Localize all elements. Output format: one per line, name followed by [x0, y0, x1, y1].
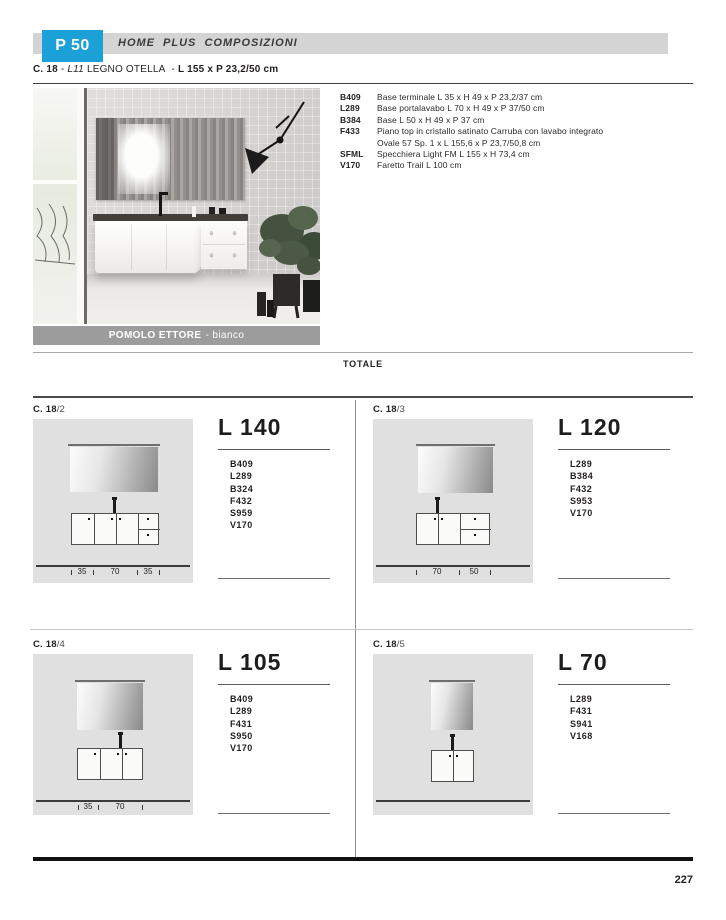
- composition-photo: [33, 88, 320, 324]
- ground-line: [376, 800, 530, 802]
- variant-diagram: 70 50: [373, 419, 533, 583]
- variant-bottom-rule: [558, 813, 670, 814]
- variant-title-rule: [218, 684, 330, 685]
- variant-codes: B409 L289 F431 S950 V170: [230, 693, 253, 754]
- knob-icon: [474, 518, 476, 520]
- variant-codes: B409 L289 B324 F432 S959 V170: [230, 458, 253, 532]
- variant-code: F431: [230, 718, 253, 730]
- dim-tick: [71, 570, 72, 575]
- dim-tick: [142, 805, 143, 810]
- knob-icon: [441, 518, 443, 520]
- cabinet-divider: [453, 751, 454, 781]
- component-code: B409: [340, 92, 377, 103]
- variant-code: L289: [570, 693, 593, 705]
- component-code: L289: [340, 103, 377, 114]
- component-desc: Base terminale L 35 x H 49 x P 23,2/37 c…: [377, 92, 722, 103]
- knob-icon: [147, 518, 149, 520]
- component-desc: Ovale 57 Sp. 1 x L 155,6 x P 23,7/50,8 c…: [377, 138, 722, 149]
- component-desc: Piano top in cristallo satinato Carruba …: [377, 126, 722, 137]
- component-row: V170 Faretto Trail L 100 cm: [340, 160, 722, 171]
- variant-ref: C. 18/3: [373, 404, 405, 415]
- heading-rule: [33, 83, 693, 84]
- variant-title-rule: [558, 684, 670, 685]
- mirror-light-icon: [68, 444, 160, 446]
- variant-ref-suffix: /5: [397, 639, 405, 650]
- wall-lamp-icon: [257, 102, 304, 155]
- dim-label: 35: [84, 802, 93, 811]
- faucet-icon: [451, 737, 454, 750]
- mirror-icon: [431, 683, 473, 730]
- photo-caption: POMOLO ETTORE - bianco: [33, 326, 320, 345]
- component-row: SFML Specchiera Light FM L 155 x H 73,4 …: [340, 149, 722, 160]
- knob-icon: [94, 753, 96, 755]
- collection-title: HOME PLUS COMPOSIZIONI: [118, 37, 298, 49]
- lamp-joint-icon: [277, 137, 284, 144]
- variant-code: F432: [230, 495, 253, 507]
- component-row-continuation: Ovale 57 Sp. 1 x L 155,6 x P 23,7/50,8 c…: [340, 138, 722, 149]
- variant-code: B409: [230, 693, 253, 705]
- dim-label: 50: [470, 567, 479, 576]
- variant-ref-code: C. 18: [33, 639, 57, 650]
- variant-code: B324: [230, 483, 253, 495]
- variant-ref: C. 18/5: [373, 639, 405, 650]
- variant-title-rule: [218, 449, 330, 450]
- variant-code: V168: [570, 730, 593, 742]
- dim-tick: [137, 570, 138, 575]
- variant-diagram: 35 70 35: [33, 419, 193, 583]
- finish-code: L11: [67, 64, 84, 75]
- variant-title: L 105: [218, 649, 281, 676]
- variant-code: B409: [230, 458, 253, 470]
- variant-ref: C. 18/2: [33, 404, 65, 415]
- knob-icon: [88, 518, 90, 520]
- finish-name: LEGNO OTELLA: [87, 64, 166, 75]
- cabinet-divider: [460, 529, 491, 530]
- row-divider: [30, 629, 693, 630]
- variant-code: L289: [570, 458, 593, 470]
- knob-icon: [119, 518, 121, 520]
- dash: -: [171, 64, 175, 75]
- caption-finish: - bianco: [206, 330, 245, 341]
- variant-bottom-rule: [218, 578, 330, 579]
- variant-diagram: 35 70: [33, 654, 193, 815]
- component-row: B409 Base terminale L 35 x H 49 x P 23,2…: [340, 92, 722, 103]
- dim-label: 70: [433, 567, 442, 576]
- knob-icon: [125, 753, 127, 755]
- variant-code: S950: [230, 730, 253, 742]
- variant-bottom-rule: [558, 578, 670, 579]
- dim-tick: [459, 570, 460, 575]
- cabinet-icon: [416, 513, 490, 545]
- variant-code: L289: [230, 470, 253, 482]
- plant-icon: [259, 206, 320, 275]
- component-row: F433 Piano top in cristallo satinato Car…: [340, 126, 722, 137]
- component-row: L289 Base portalavabo L 70 x H 49 x P 37…: [340, 103, 722, 114]
- component-code: B384: [340, 115, 377, 126]
- totale-rule-bottom: [33, 396, 693, 398]
- variant-title-rule: [558, 449, 670, 450]
- composition-heading: C. 18 - L11 LEGNO OTELLA - L 155 x P 23,…: [33, 64, 278, 75]
- cabinet-icon: [77, 748, 143, 780]
- mirror-icon: [70, 447, 158, 492]
- variant-title: L 120: [558, 414, 621, 441]
- ground-line: [376, 565, 530, 567]
- knob-icon: [111, 518, 113, 520]
- dim-label: 70: [116, 802, 125, 811]
- cabinet-divider: [122, 749, 123, 779]
- planter-pot-icon: [257, 274, 320, 318]
- variant-diagram: [373, 654, 533, 815]
- page-number: 227: [600, 874, 693, 886]
- knob-icon: [117, 753, 119, 755]
- cabinet-divider: [100, 749, 101, 779]
- variant-title: L 70: [558, 649, 608, 676]
- variant-ref-code: C. 18: [373, 639, 397, 650]
- variant-bottom-rule: [218, 813, 330, 814]
- faucet-icon: [119, 735, 122, 748]
- totale-rule-top: [33, 352, 693, 353]
- catalog-page: P 50 HOME PLUS COMPOSIZIONI C. 18 - L11 …: [0, 0, 726, 920]
- railing-icon: [35, 204, 75, 264]
- dim-tick: [490, 570, 491, 575]
- dim-label: 35: [144, 567, 153, 576]
- variant-code: S941: [570, 718, 593, 730]
- knob-icon: [474, 534, 476, 536]
- ground-line: [36, 800, 190, 802]
- component-code: F433: [340, 126, 377, 137]
- variant-code: V170: [230, 519, 253, 531]
- knob-icon: [456, 755, 458, 757]
- knob-icon: [147, 534, 149, 536]
- component-code: V170: [340, 160, 377, 171]
- dim-tick: [93, 570, 94, 575]
- dim-tick: [416, 570, 417, 575]
- component-desc: Specchiera Light FM L 155 x H 73,4 cm: [377, 149, 722, 160]
- totale-label: TOTALE: [33, 359, 693, 369]
- mirror-icon: [418, 447, 493, 493]
- cabinet-icon: [71, 513, 159, 545]
- variant-codes: L289 F431 S941 V168: [570, 693, 593, 742]
- component-desc: Base portalavabo L 70 x H 49 x P 37/50 c…: [377, 103, 722, 114]
- variant-ref: C. 18/4: [33, 639, 65, 650]
- dim-tick: [159, 570, 160, 575]
- mirror-light-icon: [75, 680, 145, 682]
- footer-bar: [33, 857, 693, 861]
- faucet-icon: [436, 500, 439, 513]
- composition-code: C. 18: [33, 64, 58, 75]
- variant-ref-suffix: /2: [57, 404, 65, 415]
- faucet-icon: [113, 500, 116, 513]
- variant-codes: L289 B384 F432 S953 V170: [570, 458, 593, 519]
- composition-size: L 155 x P 23,2/50 cm: [178, 64, 278, 75]
- component-list: B409 Base terminale L 35 x H 49 x P 23,2…: [340, 92, 722, 172]
- knob-icon: [434, 518, 436, 520]
- page-code-badge: P 50: [42, 30, 103, 62]
- variant-code: V170: [230, 742, 253, 754]
- mirror-light-icon: [416, 444, 495, 446]
- component-row: B384 Base L 50 x H 49 x P 37 cm: [340, 115, 722, 126]
- mirror-icon: [77, 683, 143, 730]
- cabinet-divider: [438, 514, 439, 544]
- cabinet-divider: [138, 529, 160, 530]
- variant-code: F431: [570, 705, 593, 717]
- dim-label: 70: [111, 567, 120, 576]
- variant-code: V170: [570, 507, 593, 519]
- component-desc: Base L 50 x H 49 x P 37 cm: [377, 115, 722, 126]
- photo-decor: [33, 88, 320, 324]
- dim-label: 35: [78, 567, 87, 576]
- mirror-light-icon: [429, 680, 475, 682]
- variant-code: F432: [570, 483, 593, 495]
- variant-ref-code: C. 18: [373, 404, 397, 415]
- cabinet-divider: [116, 514, 117, 544]
- caption-product: POMOLO ETTORE: [109, 330, 202, 341]
- dim-tick: [98, 805, 99, 810]
- variant-code: S959: [230, 507, 253, 519]
- variant-ref-suffix: /3: [397, 404, 405, 415]
- variant-ref-code: C. 18: [33, 404, 57, 415]
- component-code-empty: [340, 138, 377, 149]
- variant-code: B384: [570, 470, 593, 482]
- cabinet-icon: [431, 750, 474, 782]
- variant-code: S953: [570, 495, 593, 507]
- component-desc: Faretto Trail L 100 cm: [377, 160, 722, 171]
- variant-ref-suffix: /4: [57, 639, 65, 650]
- lamp-shade-icon: [245, 148, 269, 174]
- cabinet-divider: [94, 514, 95, 544]
- knob-icon: [449, 755, 451, 757]
- dash: -: [61, 64, 65, 75]
- component-code: SFML: [340, 149, 377, 160]
- dim-tick: [78, 805, 79, 810]
- variant-title: L 140: [218, 414, 281, 441]
- variant-code: L289: [230, 705, 253, 717]
